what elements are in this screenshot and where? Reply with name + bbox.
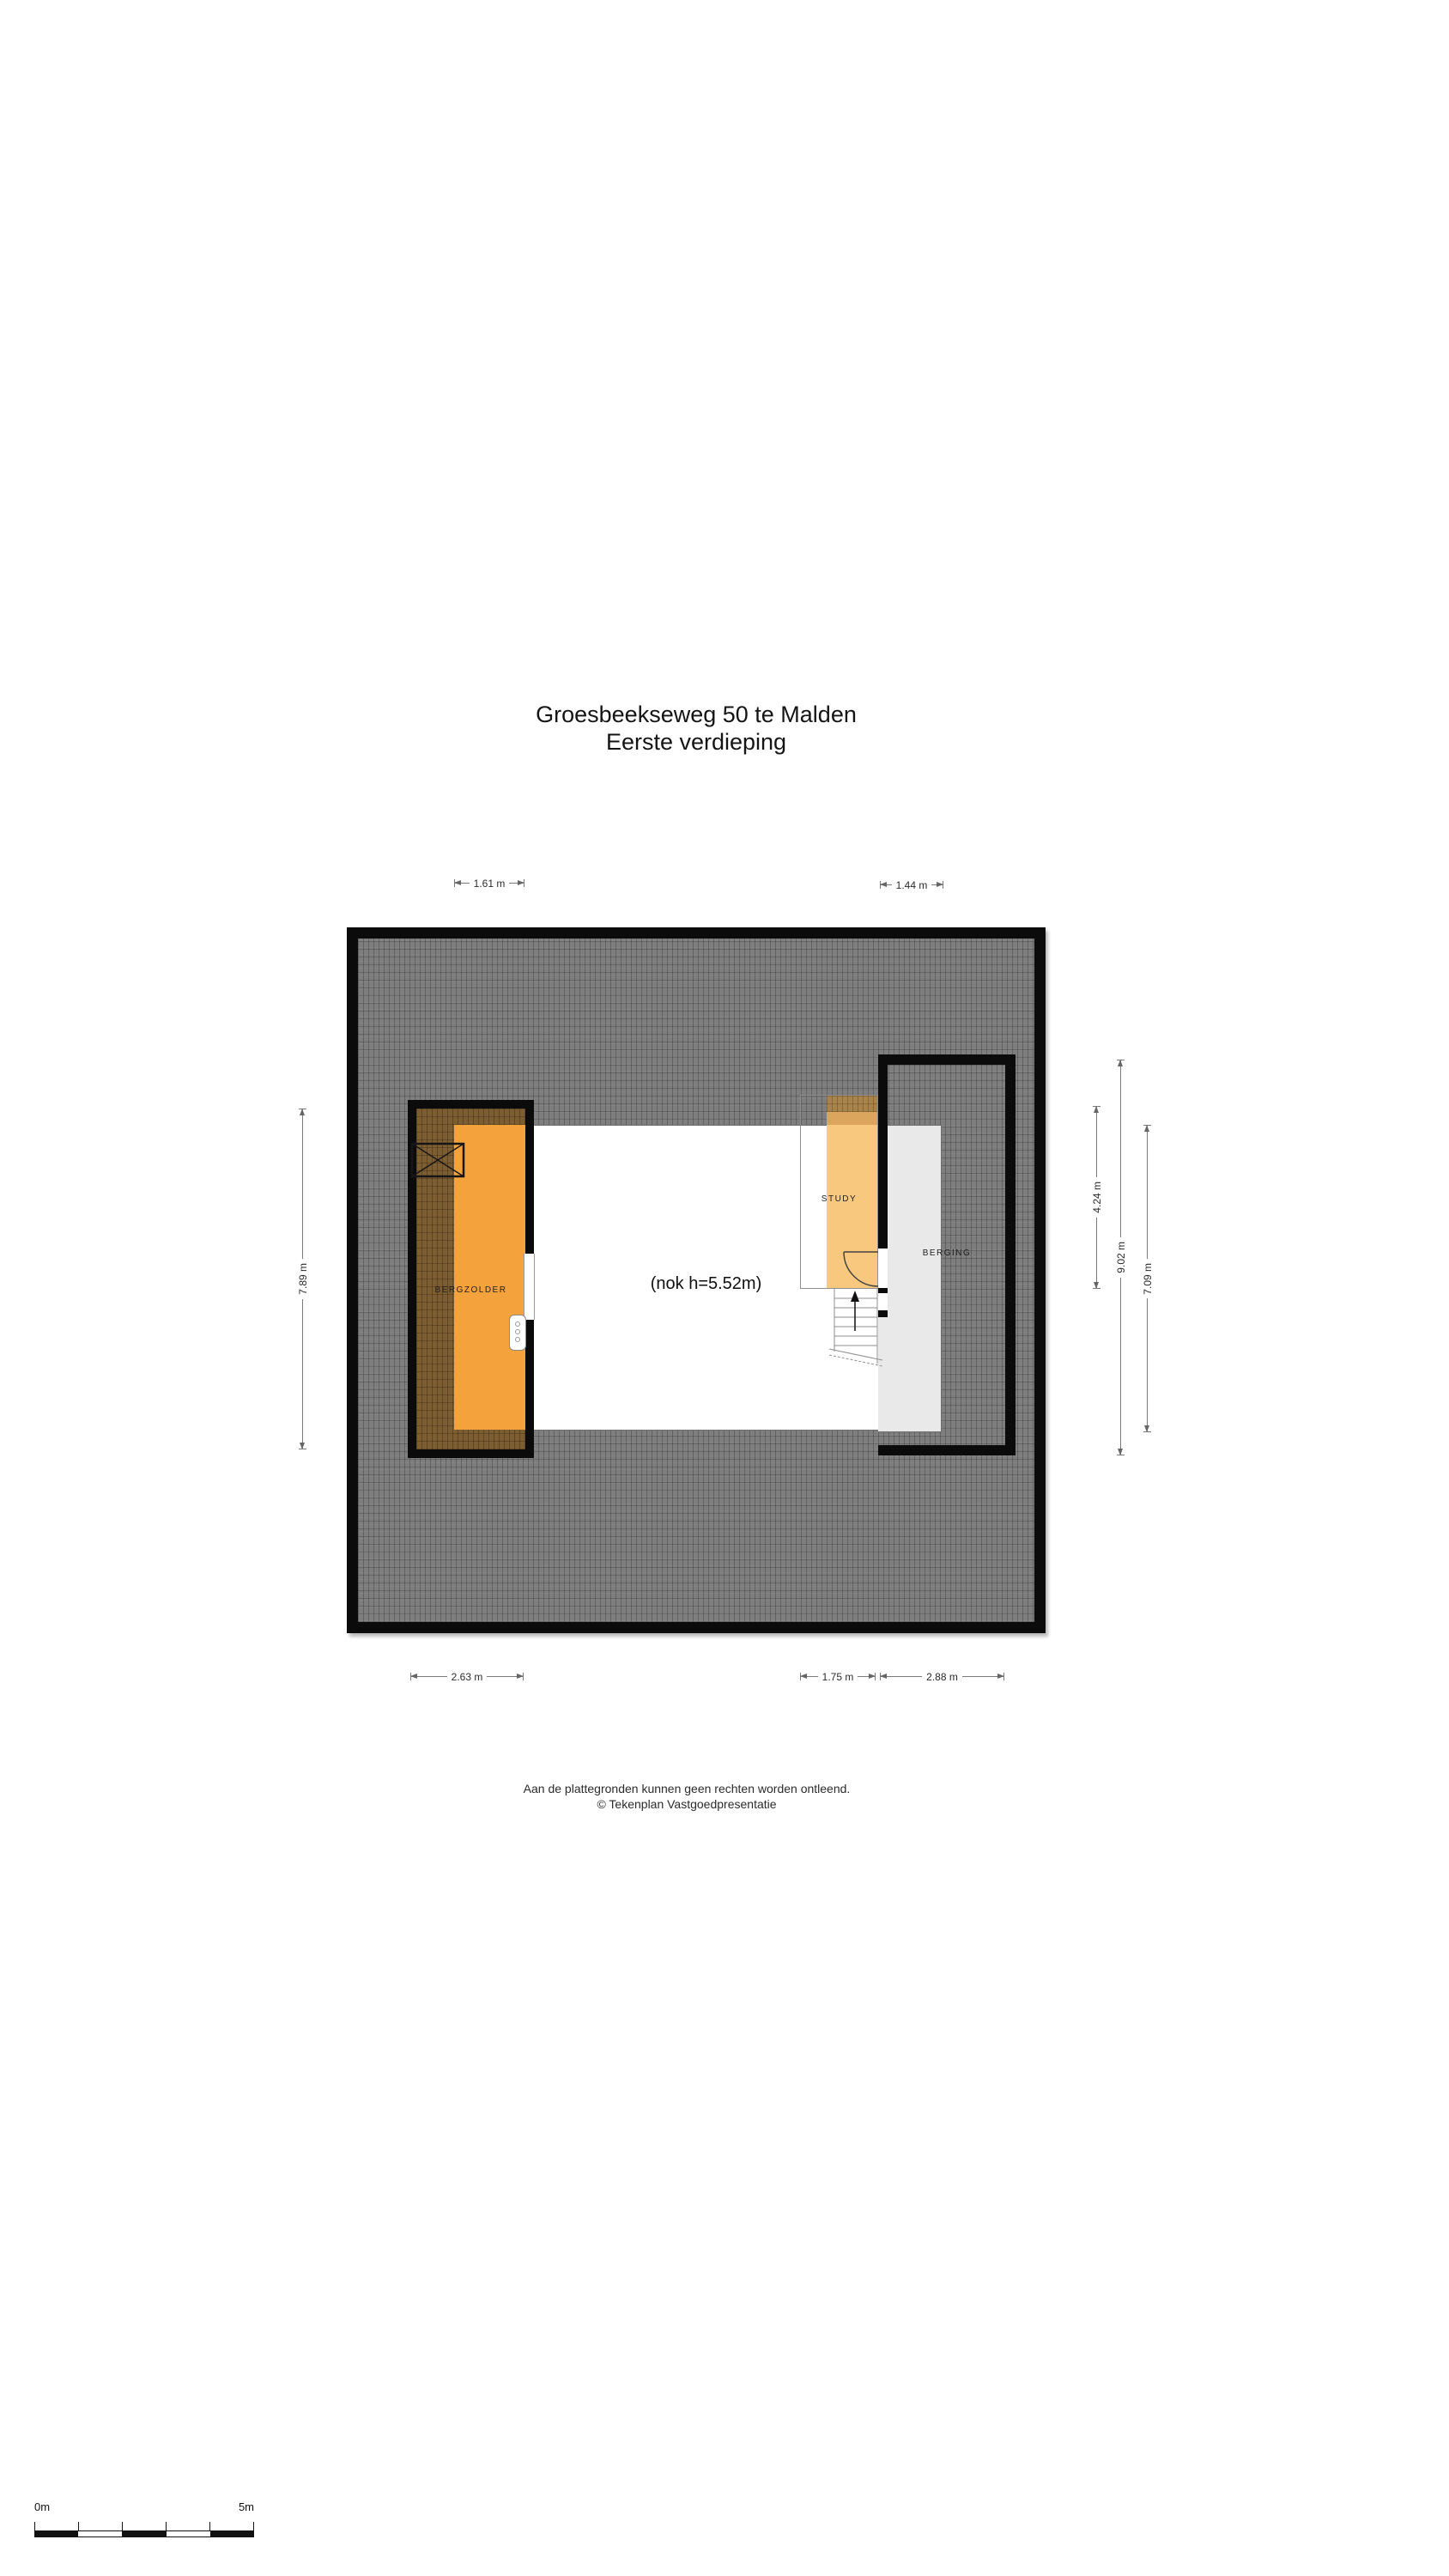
footer-copyright: © Tekenplan Vastgoedpresentatie [337, 1796, 1036, 1812]
door-opening [878, 1249, 888, 1288]
dimension-label: 2.63 m [447, 1671, 488, 1683]
dimension-label: 1.75 m [818, 1671, 858, 1683]
scalebar-tick [122, 2522, 123, 2530]
room-bergzolder: BERGZOLDER [408, 1100, 534, 1458]
dimension-right-box: 9.02 m [1115, 1060, 1126, 1455]
wall-berging-top [878, 1054, 1016, 1065]
scalebar-segment [210, 2530, 254, 2537]
title-block: Groesbeekseweg 50 te Malden Eerste verdi… [347, 701, 1046, 756]
dimension-label: 2.88 m [922, 1671, 962, 1683]
scalebar-segment [78, 2530, 122, 2537]
page-title: Groesbeekseweg 50 te Malden [347, 701, 1046, 728]
stair-opening [878, 1293, 888, 1310]
scalebar-segment [34, 2530, 78, 2537]
dimension-label: 7.09 m [1142, 1259, 1154, 1299]
room-study-outline: STUDY [800, 1095, 878, 1289]
wall-berging-bottom [878, 1445, 1016, 1455]
dimension-right-berging: 7.09 m [1142, 1125, 1153, 1432]
page-subtitle: Eerste verdieping [347, 728, 1046, 756]
wall-berging-right [1005, 1054, 1016, 1455]
room-label-study: STUDY [801, 1194, 877, 1204]
dimension-label: 9.02 m [1115, 1237, 1127, 1278]
scalebar-segment [167, 2530, 210, 2537]
dimension-label: 7.89 m [297, 1259, 309, 1299]
scalebar-start-label: 0m [34, 2500, 50, 2513]
dimension-bottom-study: 1.75 m [800, 1671, 876, 1682]
wall-berging-left-upper [878, 1054, 888, 1249]
scale-bar [34, 2530, 254, 2537]
dimension-top-bergzolder: 1.61 m [454, 878, 524, 889]
scalebar-end-label: 5m [211, 2500, 254, 2513]
wall-berging-left-stub [878, 1288, 888, 1293]
room-berging-floor [878, 1125, 942, 1432]
radiator-symbol [509, 1315, 526, 1351]
dimension-label: 1.44 m [892, 879, 932, 891]
dimension-left-bergzolder: 7.89 m [297, 1109, 308, 1449]
scalebar-tick [166, 2522, 167, 2530]
footer-disclaimer: Aan de plattegronden kunnen geen rechten… [337, 1781, 1036, 1796]
room-bergzolder-floor [454, 1125, 525, 1430]
dimension-bottom-bergzolder: 2.63 m [410, 1671, 524, 1682]
floorplan-page: { "title": { "address": "Groesbeekseweg … [0, 0, 1449, 2576]
room-label-berging: BERGING [888, 1249, 1005, 1258]
dimension-bottom-berging: 2.88 m [880, 1671, 1004, 1682]
scalebar-tick [78, 2522, 79, 2530]
room-label-bergzolder: BERGZOLDER [416, 1285, 525, 1295]
dimension-right-study: 4.24 m [1091, 1106, 1102, 1289]
ridge-height-note: (nok h=5.52m) [534, 1274, 878, 1294]
scalebar-tick [209, 2522, 210, 2530]
dimension-label: 1.61 m [470, 878, 510, 890]
dimension-top-berging: 1.44 m [880, 879, 943, 890]
footer-block: Aan de plattegronden kunnen geen rechten… [337, 1781, 1036, 1812]
scalebar-tick [253, 2522, 254, 2530]
scalebar-tick [34, 2522, 35, 2530]
scalebar-segment [122, 2530, 166, 2537]
dimension-label: 4.24 m [1091, 1177, 1103, 1218]
wall-berging-left-lower [878, 1310, 888, 1317]
